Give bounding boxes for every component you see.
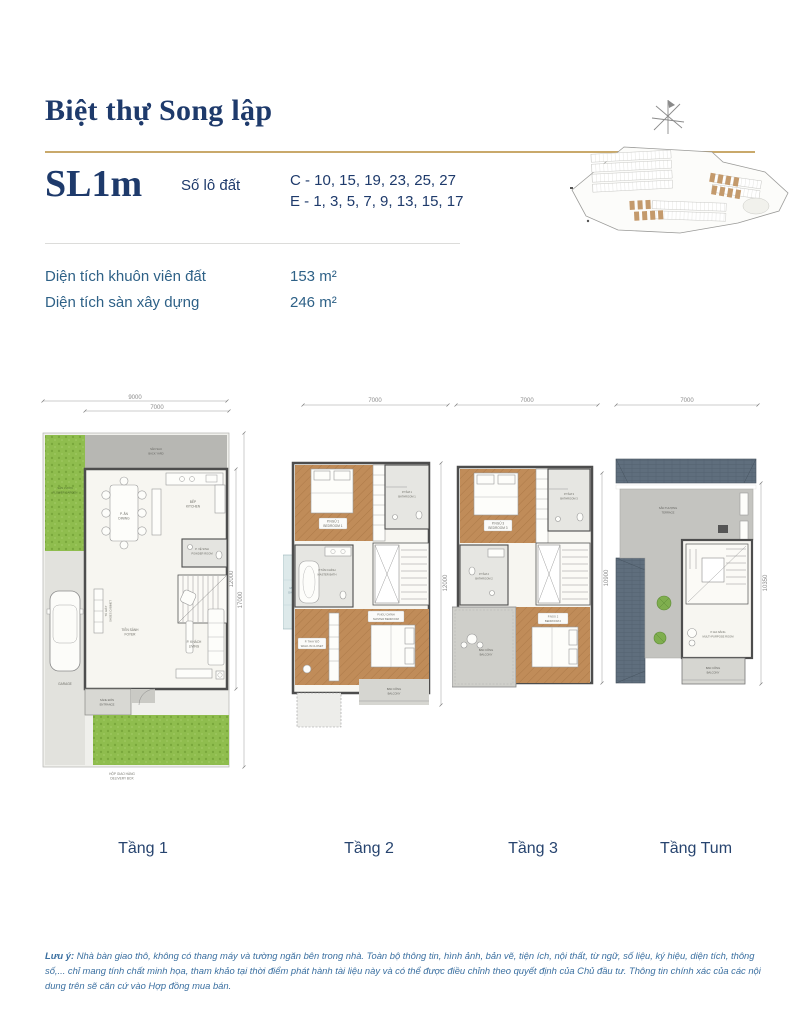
room-label: P. ĐA NĂNG [710,630,725,634]
master-bedroom: P.NGỦ CHÍNH MASTER BEDROOM [341,609,429,685]
caption-tang-tum: Tầng Tum [612,840,780,858]
bedroom-2: P.NGỦ 2 BEDROOM 2 [516,607,590,683]
room-label: FOYER [125,633,137,637]
floor-plan-tang-3: 7000 10900 P.NGỦ 3 BEDROOM 3 [452,393,614,838]
room-label: P. ĂN [120,512,129,516]
brochure-page: Biệt thự Song lập SL1m Số lô đất C - 10,… [0,0,800,1024]
room-label: SÂN THƯỢNG [659,506,677,510]
room-label: HỘP GIAO HÀNG [109,771,135,776]
room-label: BACK YARD [148,452,163,456]
dim-label: 7000 [150,405,164,411]
area-label: Diện tích sàn xây dựng [45,294,290,311]
lot-numbers: C - 10, 15, 19, 23, 25, 27 E - 1, 3, 5, … [290,170,463,212]
stairs [686,544,748,604]
room-label: MULTI-PURPOSE ROOM [702,635,734,639]
compass-icon [652,100,684,134]
lot-numbers-line-1: C - 10, 15, 19, 23, 25, 27 [290,170,463,191]
room-label: SHOES CABINET [109,600,113,622]
area-value: 246 m² [290,294,337,311]
bedroom-3: P.NGỦ 3 BEDROOM 3 [460,469,536,543]
side-balcony [297,693,341,727]
master-bathroom: P.TẮM CHÍNH MASTER BATH [295,545,353,607]
bathroom-3: P.TẮM 3 BATHROOM 3 [548,469,590,531]
caption-tang-2: Tầng 2 [283,840,455,858]
floor-plan-tang-tum: 7000 10350 SÂN THƯỢNG TERRACE [612,393,780,838]
room-label: GARAGE [58,682,72,686]
wardrobe [373,465,385,541]
chair [689,640,695,646]
balcony: BAN CÔNG BALCONY [682,658,745,684]
room-label: BEDROOM 3 [488,526,507,530]
room-label: BATHROOM 2 [475,577,493,581]
dim-label: 7000 [680,398,694,404]
room-label: MASTER BATH [318,573,337,577]
room-label: P.NGỦ 3 [492,521,505,526]
room-label: MASTER BEDROOM [373,617,400,621]
footer-note: Lưu ý: Nhà bàn giao thô, không có thang … [45,948,761,993]
area-value: 153 m² [290,268,337,285]
bedroom-1: P.NGỦ 1 BEDROOM 1 [295,465,373,541]
dim-label: 10900 [604,569,610,586]
room-label: WALK-IN CLOSET [301,644,324,648]
lot-label: Số lô đất [181,177,240,194]
room-label: BEDROOM 2 [545,619,562,623]
table [688,629,697,638]
dim-label: 9000 [128,395,142,401]
room-label: LIVING [189,645,200,649]
page-title: Biệt thự Song lập [45,94,272,128]
walk-in-closet: P. THAY ĐỒ WALK-IN CLOSET [295,609,341,685]
room-label: POWDER ROOM [191,552,213,556]
room-label: DELIVERY BOX [110,777,134,781]
dim-label: 7000 [368,398,382,404]
room-label: P. KHÁCH [187,640,202,644]
room-label: BATHROOM 1 [398,495,416,499]
model-code: SL1m [45,162,142,206]
room-label: BALCONY [480,653,493,657]
wardrobe [536,469,548,543]
room-label: ENTRANCE [100,703,115,707]
room-label: BALCONY [707,671,720,675]
plant [654,632,666,644]
room-label: SÂN VƯỜN [57,485,72,490]
floor-plan-tang-2: 7000 12000 MÁI GARAGE GARAGE ROOF P.NGỦ … [283,393,455,838]
bathroom-1: P.TẮM 1 BATHROOM 1 [385,465,429,529]
dim-label: 10350 [763,574,769,591]
master-plan-outline [570,147,788,233]
balcony: BAN CÔNG BALCONY [359,679,429,705]
room-label: FLOWER GARDEN [53,491,78,495]
area-info: Diện tích khuôn viên đất 153 m² Diện tíc… [45,268,465,320]
caption-tang-1: Tầng 1 [36,840,250,858]
plant [657,596,671,610]
room-label: SÂN SAU [150,447,162,451]
room-label: P.NGỦ 1 [327,519,340,524]
room-label: KITCHEN [186,505,201,509]
light-divider [45,243,460,244]
area-row: Diện tích khuôn viên đất 153 m² [45,268,465,285]
area-label: Diện tích khuôn viên đất [45,268,290,285]
balcony: BAN CÔNG BALCONY [452,607,516,687]
room-label: BATHROOM 3 [560,497,578,501]
room-label: BẾP [190,499,196,504]
area-row: Diện tích sàn xây dựng 246 m² [45,294,465,311]
room-label: BEDROOM 1 [323,524,342,528]
lot-numbers-line-2: E - 1, 3, 5, 7, 9, 13, 15, 17 [290,191,463,212]
site-map [560,90,795,258]
powder-room: P. VỆ SINH POWDER ROOM [182,539,227,567]
stairs [373,543,429,605]
dim-label: 17000 [238,591,244,608]
room-label: BALCONY [388,692,401,696]
dim-label: 7000 [520,398,534,404]
stairs [536,543,590,605]
room-label: TIỀN SẢNH [121,627,139,632]
floor-plan-tang-1: 9000 7000 12000 17000 SÂN SAU BACK YARD … [36,393,250,838]
note-body: Nhà bàn giao thô, không có thang máy và … [45,950,761,991]
dim-label: 12000 [443,574,449,591]
room-label: DINING [118,517,130,521]
dim-label: 12000 [229,570,235,587]
equipment [718,525,728,533]
bathroom-2: P.TẮM 2 BATHROOM 2 [460,545,508,605]
rear-garden [93,715,229,765]
note-prefix: Lưu ý: [45,950,74,961]
room-label: TERRACE [662,511,675,515]
caption-tang-3: Tầng 3 [452,840,614,858]
